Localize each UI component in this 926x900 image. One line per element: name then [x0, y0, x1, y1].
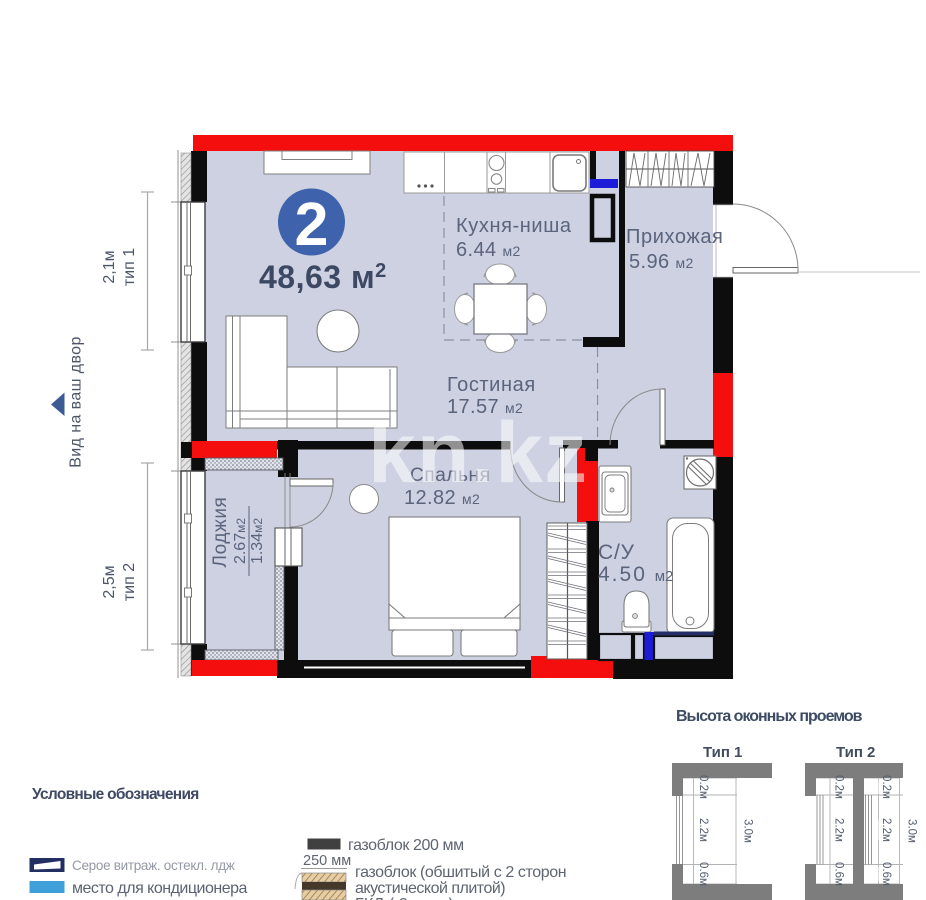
svg-text:0.2м: 0.2м: [697, 775, 709, 799]
svg-text:Высота оконных проемов: Высота оконных проемов: [676, 708, 863, 725]
svg-text:48,63 м2: 48,63 м2: [259, 259, 387, 295]
svg-text:2.2м: 2.2м: [833, 818, 845, 842]
svg-text:3.0м: 3.0м: [906, 819, 918, 843]
svg-text:Гостиная: Гостиная: [447, 374, 536, 396]
svg-text:ГКЛ ( 2 слоя): ГКЛ ( 2 слоя): [355, 896, 454, 900]
svg-text:2,1м: 2,1м: [101, 250, 118, 283]
svg-text:Серое витраж. остекл. лдж: Серое витраж. остекл. лдж: [72, 858, 235, 873]
svg-text:газоблок 200 мм: газоблок 200 мм: [348, 837, 464, 854]
svg-text:kn.kz: kn.kz: [368, 405, 588, 501]
svg-text:Вид на ваш двор: Вид на ваш двор: [68, 336, 85, 468]
svg-text:тип 2: тип 2: [121, 563, 138, 601]
svg-text:0.2м: 0.2м: [880, 775, 892, 799]
svg-text:Кухня-ниша: Кухня-ниша: [456, 215, 572, 237]
svg-text:1.34м2: 1.34м2: [249, 518, 266, 564]
svg-text:С/У: С/У: [598, 541, 635, 564]
svg-text:2.67м2: 2.67м2: [232, 518, 249, 564]
svg-text:газоблок (обшитый с 2 сторон: газоблок (обшитый с 2 сторон: [355, 864, 566, 881]
svg-text:0.2м: 0.2м: [833, 775, 845, 799]
svg-text:Тип 1: Тип 1: [703, 744, 742, 761]
svg-text:2: 2: [295, 190, 329, 258]
svg-text:5.96 м2: 5.96 м2: [629, 251, 694, 273]
svg-text:0.6м: 0.6м: [880, 862, 892, 886]
svg-text:6.44 м2: 6.44 м2: [456, 239, 521, 261]
svg-text:250 мм: 250 мм: [303, 853, 351, 869]
svg-text:3.0м: 3.0м: [742, 819, 754, 843]
svg-text:Условные обозначения: Условные обозначения: [32, 786, 199, 803]
svg-text:Лоджия: Лоджия: [210, 497, 231, 568]
svg-text:место для кондиционера: место для кондиционера: [72, 880, 247, 897]
svg-text:тип 1: тип 1: [121, 248, 138, 286]
svg-text:Тип 2: Тип 2: [836, 744, 875, 761]
svg-text:0.6м: 0.6м: [697, 862, 709, 886]
svg-text:Прихожая: Прихожая: [626, 226, 723, 248]
svg-text:2,5м: 2,5м: [101, 565, 118, 598]
svg-text:2.2м: 2.2м: [697, 818, 709, 842]
svg-text:2.2м: 2.2м: [880, 818, 892, 842]
svg-text:акустической плитой): акустической плитой): [355, 880, 505, 897]
svg-text:0.6м: 0.6м: [833, 862, 845, 886]
